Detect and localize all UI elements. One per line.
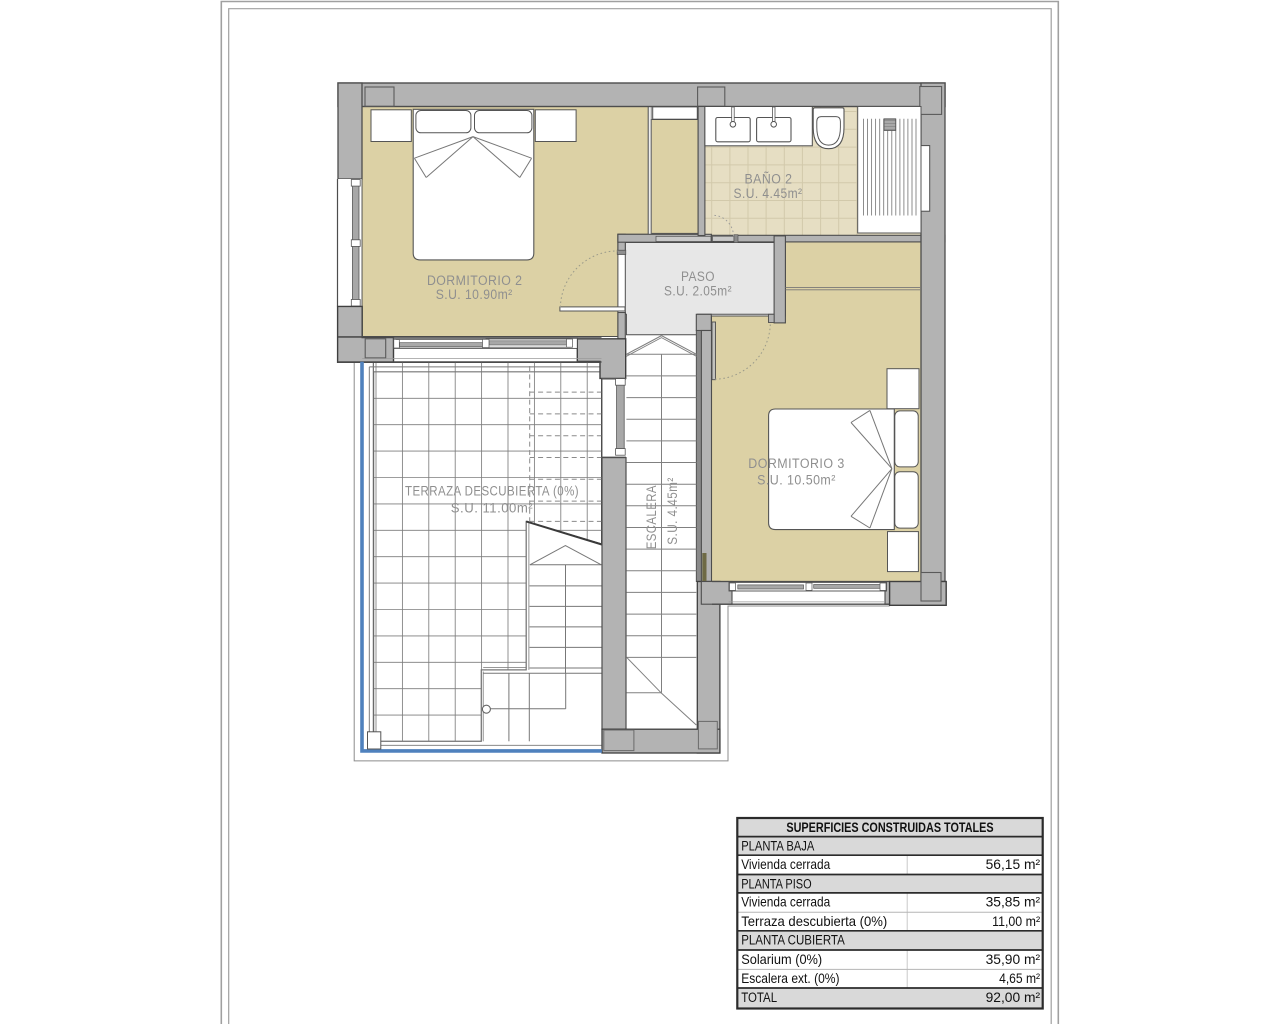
svg-text:S.U. 4.45m²: S.U. 4.45m² [734,186,803,201]
svg-text:Solarium (0%): Solarium (0%) [741,952,822,967]
svg-text:Escalera ext. (0%): Escalera ext. (0%) [741,971,839,986]
svg-text:PLANTA CUBIERTA: PLANTA CUBIERTA [741,933,845,949]
svg-text:PASO: PASO [681,269,715,284]
svg-text:S.U. 10.50m²: S.U. 10.50m² [757,473,836,488]
svg-text:S.U. 11.00m²: S.U. 11.00m² [451,501,533,516]
svg-text:TOTAL: TOTAL [741,990,777,1006]
svg-text:Vivienda cerrada: Vivienda cerrada [741,857,830,872]
svg-text:35,85 m²: 35,85 m² [986,895,1041,910]
svg-text:SUPERFICIES CONSTRUIDAS TOTALE: SUPERFICIES CONSTRUIDAS TOTALES [786,820,993,835]
svg-text:4,65 m²: 4,65 m² [999,971,1040,986]
svg-text:DORMITORIO 3: DORMITORIO 3 [748,456,845,471]
svg-text:TERRAZA DESCUBIERTA (0%): TERRAZA DESCUBIERTA (0%) [405,484,579,499]
svg-text:Vivienda cerrada: Vivienda cerrada [741,895,830,910]
svg-text:BAÑO 2: BAÑO 2 [745,172,793,187]
svg-text:35,90 m²: 35,90 m² [986,952,1041,967]
svg-text:56,15 m²: 56,15 m² [986,857,1041,872]
svg-text:S.U. 2.05m²: S.U. 2.05m² [664,283,732,298]
svg-text:S.U. 10.90m²: S.U. 10.90m² [436,287,513,302]
svg-text:PLANTA PISO: PLANTA PISO [741,876,811,892]
svg-text:S.U. 4.45m²: S.U. 4.45m² [665,477,680,545]
svg-text:92,00 m²: 92,00 m² [986,990,1041,1005]
svg-text:Terraza descubierta (0%): Terraza descubierta (0%) [741,914,887,929]
svg-text:11,00 m²: 11,00 m² [992,914,1040,929]
svg-text:PLANTA BAJA: PLANTA BAJA [741,838,815,854]
svg-text:ESCALERA: ESCALERA [644,485,659,549]
